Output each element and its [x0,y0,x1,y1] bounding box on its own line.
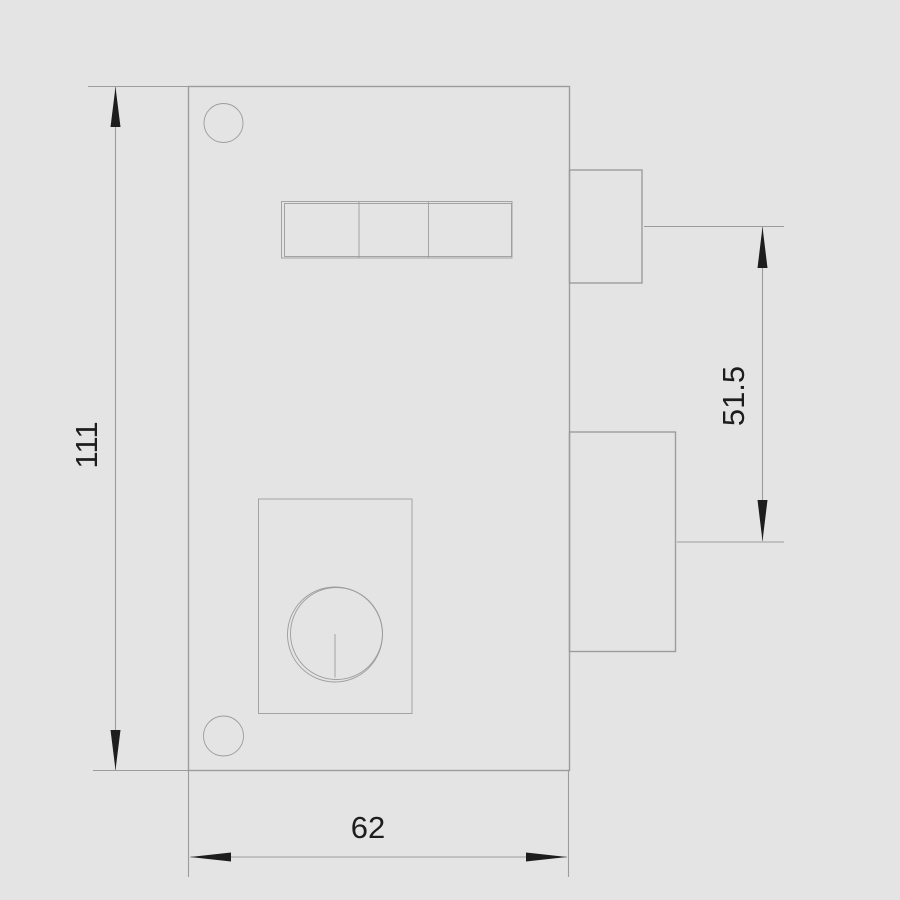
technical-drawing-canvas: 111 51.5 62 [0,0,900,900]
dimension-width-label: 62 [351,810,385,845]
dimension-offset-label: 51.5 [716,366,751,426]
drawing-background [0,0,900,900]
dimension-height-label: 111 [69,421,104,468]
